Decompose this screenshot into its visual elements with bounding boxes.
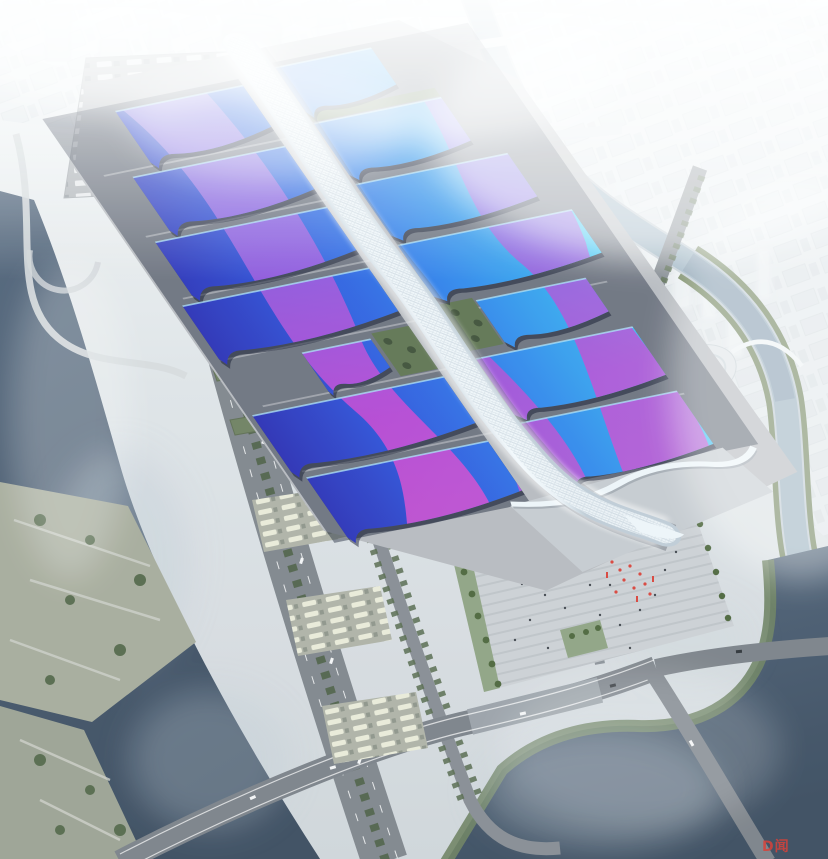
aerial-rendering: D闻 bbox=[0, 0, 828, 859]
watermark-logo: D闻 bbox=[762, 838, 790, 855]
atmosphere-veil bbox=[0, 0, 828, 859]
scene-canvas: D闻 bbox=[0, 0, 828, 859]
watermark-text: D闻 bbox=[762, 838, 790, 855]
